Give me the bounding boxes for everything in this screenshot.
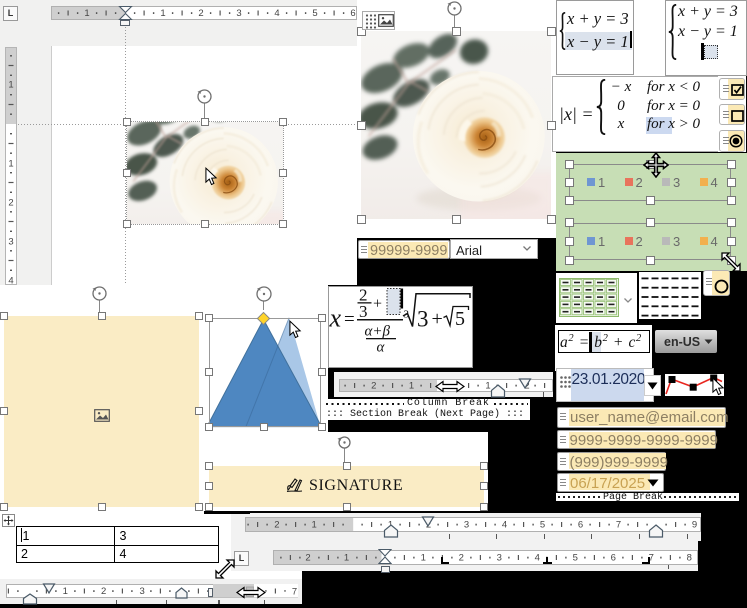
svg-text:2: 2 [8, 197, 13, 208]
svg-text:2: 2 [305, 552, 310, 563]
svg-text:2: 2 [198, 8, 203, 19]
svg-text:8: 8 [687, 552, 692, 563]
svg-text:6: 6 [577, 520, 582, 531]
svg-text:1: 1 [160, 8, 165, 19]
svg-text:4: 4 [8, 275, 13, 285]
svg-text:α+β: α+β [365, 324, 391, 340]
svg-text:6: 6 [350, 8, 355, 19]
svg-text:3: 3 [497, 552, 502, 563]
svg-text:1: 1 [409, 380, 414, 391]
svg-text:2: 2 [371, 380, 376, 391]
svg-text:4: 4 [274, 8, 279, 19]
svg-text:6: 6 [611, 552, 616, 563]
svg-text:1: 1 [421, 552, 426, 563]
svg-text:=: = [344, 309, 355, 330]
svg-text:3: 3 [8, 236, 13, 247]
svg-text:4: 4 [501, 520, 506, 531]
svg-text:+: + [432, 308, 443, 330]
svg-text:3: 3 [463, 520, 468, 531]
svg-text:3: 3 [359, 302, 368, 321]
svg-text:1: 1 [63, 586, 68, 597]
svg-text:1: 1 [344, 552, 349, 563]
svg-text:x: x [329, 304, 342, 333]
svg-text:3: 3 [140, 586, 145, 597]
svg-text:3: 3 [236, 8, 241, 19]
svg-text:7: 7 [292, 586, 297, 597]
svg-text:2: 2 [101, 586, 106, 597]
svg-text:7: 7 [615, 520, 620, 531]
svg-text:1: 1 [8, 79, 13, 90]
svg-text:1: 1 [8, 158, 13, 169]
svg-text:5: 5 [312, 8, 317, 19]
svg-text:4: 4 [535, 552, 540, 563]
svg-text:3: 3 [417, 307, 429, 332]
svg-text:1: 1 [311, 520, 316, 531]
svg-text:α: α [377, 340, 386, 356]
svg-text:1: 1 [84, 8, 89, 19]
svg-text:2: 2 [459, 552, 464, 563]
svg-text:+: + [373, 296, 382, 313]
svg-text:5: 5 [539, 520, 544, 531]
svg-text:5: 5 [455, 308, 465, 330]
svg-text:9: 9 [691, 520, 696, 531]
svg-text:2: 2 [274, 520, 279, 531]
svg-text:5: 5 [573, 552, 578, 563]
